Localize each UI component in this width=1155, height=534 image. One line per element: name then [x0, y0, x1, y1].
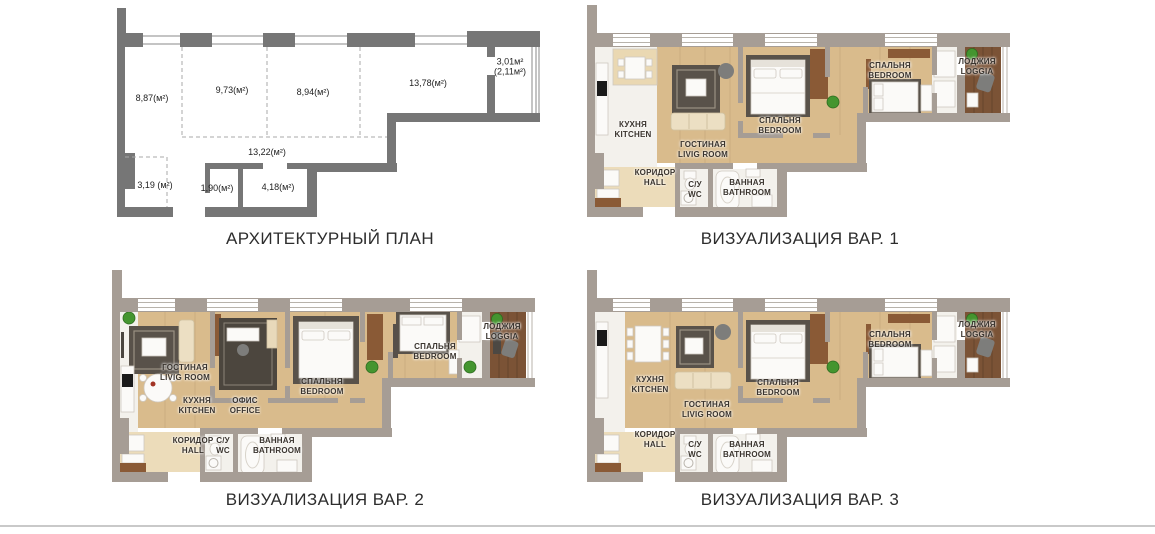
plant-icon: [827, 361, 839, 373]
closet-unit: [934, 51, 955, 77]
plant-icon: [464, 361, 476, 373]
room-label-hall: КОРИДОРHALL: [635, 430, 676, 450]
plant-icon: [827, 96, 839, 108]
cooktop: [597, 81, 607, 96]
room-label-loggia: ЛОДЖИЯLOGGIA: [483, 322, 520, 342]
wardrobe: [367, 314, 383, 360]
bedroom1-bed: [751, 325, 805, 379]
architectural-plan-title: АРХИТЕКТУРНЫЙ ПЛАН: [110, 229, 550, 249]
office-chair: [237, 344, 249, 356]
cooktop: [122, 374, 133, 387]
closet-unit: [459, 316, 480, 342]
plant-icon: [366, 361, 378, 373]
plant-icon: [123, 312, 135, 324]
armchair: [718, 63, 734, 79]
arch-window-lines: [126, 35, 539, 116]
coffee-table: [685, 338, 703, 354]
desk: [921, 85, 932, 111]
flower: [151, 382, 156, 387]
coffee-table: [142, 338, 166, 356]
room-label-bedroom2: СПАЛЬНЯBEDROOM: [868, 61, 911, 81]
room-label-kitchen: КУХНЯKITCHEN: [632, 375, 669, 395]
area-label-room3: 8,94(м²): [297, 87, 330, 97]
room-label-wc: С/УWC: [216, 436, 230, 456]
armchair: [715, 324, 731, 340]
chaise: [179, 320, 194, 362]
room-label-living: ГОСТИНАЯLIVIG ROOM: [160, 363, 210, 383]
room-label-kitchen: КУХНЯKITCHEN: [179, 396, 216, 416]
office-desk: [227, 328, 259, 341]
bottom-divider: [0, 525, 1155, 527]
room-label-hall: КОРИДОРHALL: [173, 436, 214, 456]
room-label-bedroom2: СПАЛЬНЯBEDROOM: [413, 342, 456, 362]
arch-walls: [117, 8, 540, 217]
closet-unit: [934, 346, 955, 372]
room-label-hall: КОРИДОРHALL: [635, 168, 676, 188]
sink: [746, 169, 760, 177]
visualization-2-panel: ГОСТИНАЯLIVIG ROOM КУХНЯKITCHEN ОФИСOFFI…: [105, 270, 545, 492]
bedroom2-closet: [888, 314, 930, 323]
room-label-wc: С/УWC: [688, 180, 702, 200]
area-label-loggia-line1: 3,01м²: [494, 57, 526, 67]
loggia-table: [967, 93, 978, 107]
room-label-bathroom: ВАННАЯBATHROOM: [723, 178, 771, 198]
architectural-plan-panel: 8,87(м²) 9,73(м²) 8,94(м²) 13,78(м²) 3,0…: [110, 5, 550, 227]
kitchen-counter: [121, 366, 134, 412]
room-label-living: ГОСТИНАЯLIVIG ROOM: [682, 400, 732, 420]
room-label-bathroom: ВАННАЯBATHROOM: [253, 436, 301, 456]
area-label-room1: 8,87(м²): [136, 93, 169, 103]
tv-panel: [121, 332, 124, 358]
closet-unit: [934, 81, 955, 107]
sofa: [671, 113, 725, 130]
room-label-bedroom1: СПАЛЬНЯBEDROOM: [756, 378, 799, 398]
room-label-bathroom: ВАННАЯBATHROOM: [723, 440, 771, 460]
loggia-table: [967, 358, 978, 372]
room-label-kitchen: КУХНЯKITCHEN: [615, 120, 652, 140]
area-label-loggia-line2: (2,11м²): [494, 67, 526, 77]
dining-table: [625, 57, 645, 79]
visualization-1-panel: КУХНЯKITCHEN ГОСТИНАЯLIVIG ROOM СПАЛЬНЯB…: [580, 5, 1020, 227]
visualization-1-title: ВИЗУАЛИЗАЦИЯ ВАР. 1: [580, 229, 1020, 249]
desk: [921, 350, 932, 376]
area-label-hall: 3,19 (м²): [137, 180, 172, 190]
visualization-3-title: ВИЗУАЛИЗАЦИЯ ВАР. 3: [580, 490, 1020, 510]
architectural-plan-drawing: [110, 5, 550, 227]
shelf: [267, 320, 277, 348]
cooktop: [597, 330, 607, 346]
room-label-bedroom2: СПАЛЬНЯBEDROOM: [868, 330, 911, 350]
area-label-room2: 9,73(м²): [216, 85, 249, 95]
area-label-loggia: 3,01м² (2,11м²): [494, 57, 526, 78]
room-label-wc: С/УWC: [688, 440, 702, 460]
bedroom1-bed: [299, 322, 353, 378]
area-label-wc: 1,90(м²): [201, 183, 234, 193]
room-label-loggia: ЛОДЖИЯLOGGIA: [958, 57, 995, 77]
room-label-bedroom1: СПАЛЬНЯBEDROOM: [300, 377, 343, 397]
visualization-3-panel: КУХНЯKITCHEN ГОСТИНАЯLIVIG ROOM СПАЛЬНЯB…: [580, 270, 1020, 492]
room-label-bedroom1: СПАЛЬНЯBEDROOM: [758, 116, 801, 136]
room-label-living: ГОСТИНАЯLIVIG ROOM: [678, 140, 728, 160]
dining-table: [635, 326, 661, 362]
room-label-loggia: ЛОДЖИЯLOGGIA: [958, 320, 995, 340]
room-label-office: ОФИСOFFICE: [230, 396, 261, 416]
area-label-corridor: 13,22(м²): [248, 147, 286, 157]
sofa: [675, 372, 731, 389]
shower-tray: [752, 460, 772, 472]
shower-tray: [277, 460, 297, 472]
coffee-table: [686, 79, 706, 96]
closet-unit: [934, 316, 955, 342]
area-label-room4: 13,78(м²): [409, 78, 447, 88]
area-label-bath: 4,18(м²): [262, 182, 295, 192]
visualization-2-title: ВИЗУАЛИЗАЦИЯ ВАР. 2: [105, 490, 545, 510]
bedroom1-bed: [751, 60, 805, 114]
kitchen-counter: [596, 63, 608, 135]
floor-plans-sheet: 8,87(м²) 9,73(м²) 8,94(м²) 13,78(м²) 3,0…: [0, 0, 1155, 534]
bedroom2-closet: [888, 49, 930, 58]
